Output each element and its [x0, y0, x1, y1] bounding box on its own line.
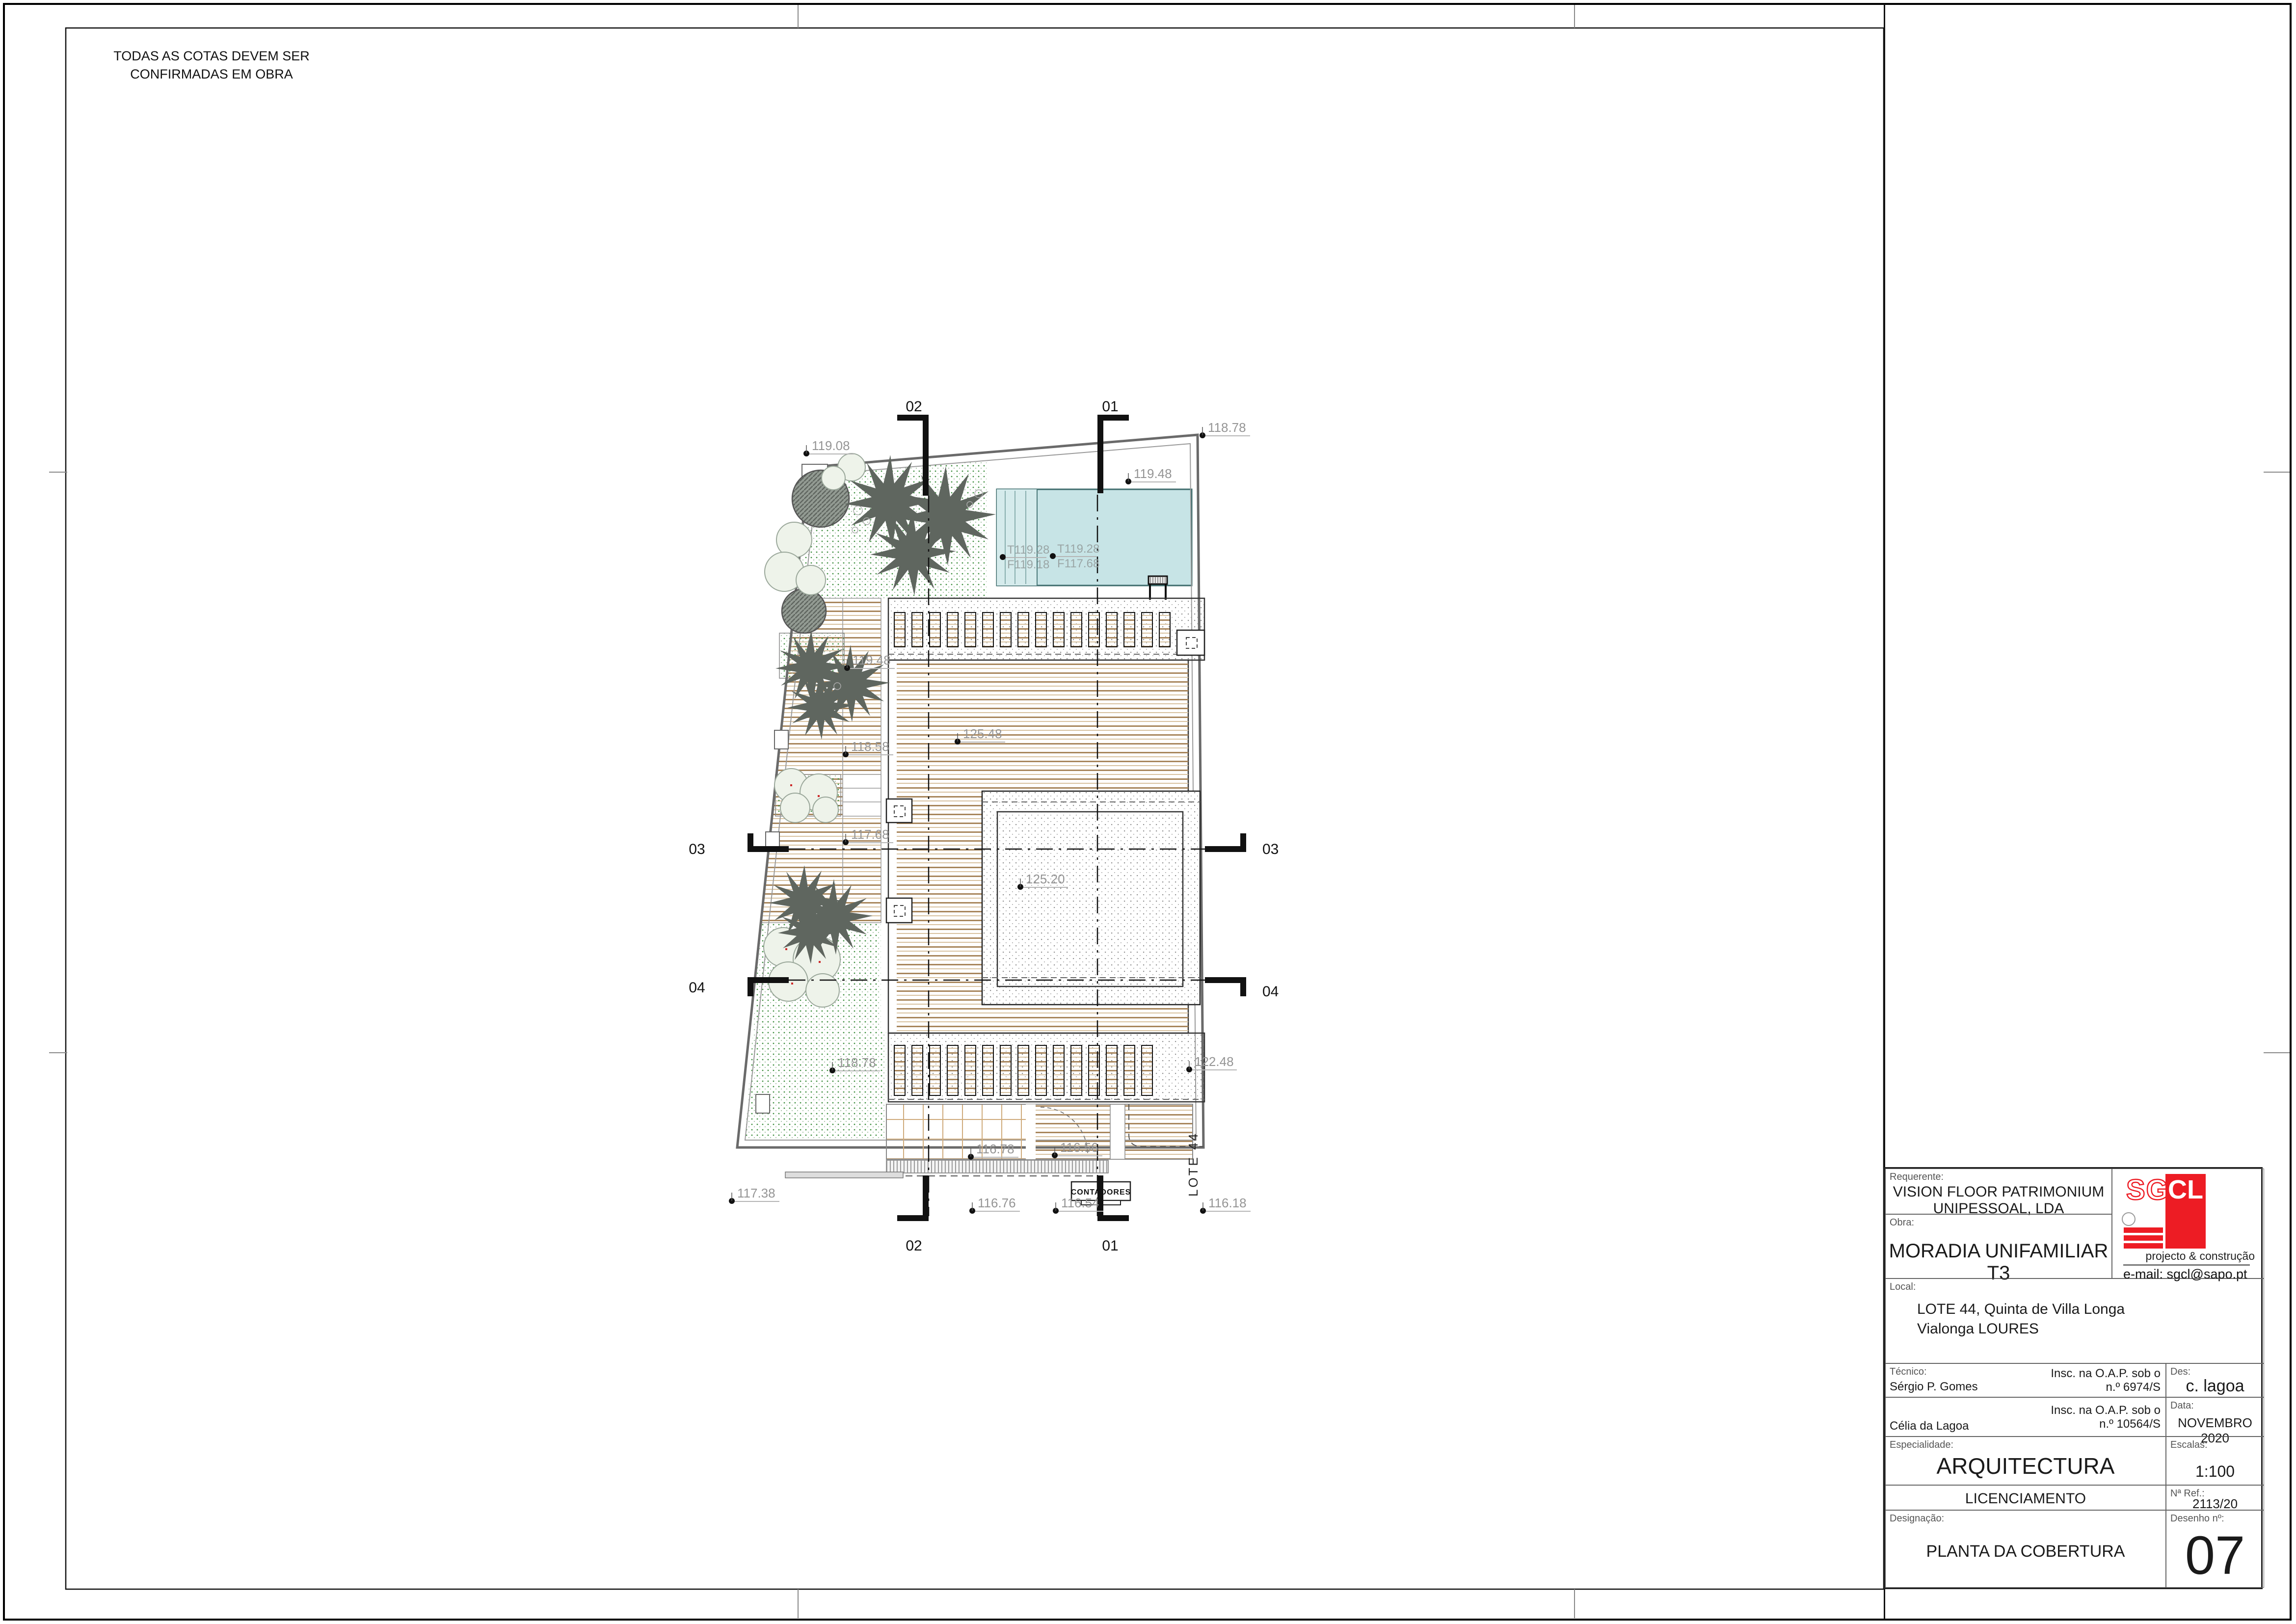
level-annotation: 116.18: [1200, 1196, 1251, 1214]
logo-tagline: projecto & construção: [2146, 1250, 2255, 1263]
level-annotation: 116.54: [1053, 1196, 1103, 1214]
tecnico1-name: Sérgio P. Gomes: [1890, 1380, 1978, 1394]
obra-value: MORADIA UNIFAMILIAR T3: [1886, 1240, 2111, 1284]
desenho-label: Desenho nº:: [2170, 1513, 2224, 1524]
designacao-label: Designação:: [1890, 1513, 1944, 1524]
svg-text:119.48: 119.48: [853, 653, 891, 667]
svg-text:117.38: 117.38: [737, 1186, 775, 1200]
svg-text:F119.18: F119.18: [1007, 558, 1049, 571]
svg-text:117.68: 117.68: [851, 827, 889, 842]
svg-text:SG: SG: [2126, 1174, 2169, 1206]
obra-label: Obra:: [1890, 1217, 1914, 1228]
lot-label: LOTE 44: [1186, 1132, 1201, 1197]
svg-text:125.48: 125.48: [963, 726, 1002, 741]
company-logo: SG CL projecto & construção e-mail: sgcl…: [2112, 1169, 2264, 1278]
roof-vent: [886, 799, 912, 823]
pergola-bottom-slats: [894, 1045, 1152, 1095]
escalas-value: 1:100: [2166, 1463, 2264, 1481]
escalas-label: Escalas:: [2170, 1439, 2208, 1451]
svg-text:122.48: 122.48: [1195, 1054, 1234, 1069]
titleblock-fase: LICENCIAMENTO: [1885, 1485, 2166, 1510]
titleblock-requerente: Requerente: VISION FLOOR PATRIMONIUM UNI…: [1885, 1169, 2112, 1214]
svg-text:118.78: 118.78: [838, 1055, 876, 1070]
designacao-value: PLANTA DA COBERTURA: [1886, 1542, 2165, 1561]
section-flag-01-top: [1100, 418, 1129, 493]
svg-text:F117.68: F117.68: [1057, 557, 1099, 570]
level-annotation: 119.08: [803, 438, 854, 456]
house-roof: [886, 598, 1204, 1102]
titleblock-obra: Obra: MORADIA UNIFAMILIAR T3: [1885, 1214, 2112, 1278]
steps: [843, 774, 881, 816]
section-flag-04-right: [1205, 980, 1243, 996]
tecnico2-insc: Insc. na O.A.P. sob o n.º 10564/S: [2051, 1404, 2161, 1431]
title-block: Requerente: VISION FLOOR PATRIMONIUM UNI…: [1884, 1167, 2263, 1589]
pool-ladder-icon: [1148, 576, 1167, 600]
svg-text:116.56: 116.56: [1060, 1140, 1098, 1155]
tecnico2-name: Célia da Lagoa: [1890, 1419, 1969, 1433]
des-value: c. lagoa: [2166, 1377, 2264, 1396]
section-label: 02: [906, 1238, 922, 1254]
wall-post: [774, 730, 788, 749]
logo-rule: [2123, 1264, 2250, 1266]
section-label: 02: [906, 399, 922, 415]
svg-text:116.78: 116.78: [976, 1142, 1015, 1156]
level-annotation: 116.76: [969, 1196, 1020, 1214]
svg-text:119.48: 119.48: [1134, 466, 1172, 481]
section-label: 04: [689, 980, 705, 996]
requerente-label: Requerente:: [1890, 1171, 1944, 1183]
titleblock-ref: Nª Ref.: 2113/20: [2166, 1485, 2264, 1510]
ref-value: 2113/20: [2166, 1496, 2264, 1512]
titleblock-local: Local: LOTE 44, Quinta de Villa Longa Vi…: [1885, 1278, 2264, 1363]
section-flag-02-bottom: [897, 1175, 926, 1218]
local-value: LOTE 44, Quinta de Villa Longa Vialonga …: [1917, 1300, 2125, 1339]
requerente-value: VISION FLOOR PATRIMONIUM UNIPESSOAL, LDA: [1886, 1184, 2111, 1217]
svg-text:125.20: 125.20: [1026, 872, 1065, 886]
skylight-roof: [982, 791, 1200, 1005]
titleblock-des: Des: c. lagoa: [2166, 1363, 2264, 1397]
svg-text:116.18: 116.18: [1208, 1196, 1247, 1210]
svg-text:T119.28: T119.28: [1007, 543, 1049, 557]
svg-text:118.58: 118.58: [851, 739, 889, 754]
svg-text:CL: CL: [2168, 1175, 2203, 1204]
titleblock-tecnico2: Célia da Lagoa Insc. na O.A.P. sob o n.º…: [1885, 1397, 2166, 1437]
section-label: 01: [1102, 399, 1118, 415]
tree-icon: [782, 589, 826, 633]
local-label: Local:: [1890, 1281, 1916, 1293]
titleblock-escalas: Escalas: 1:100: [2166, 1437, 2264, 1485]
titleblock-especialidade: Especialidade: ARQUITECTURA: [1885, 1437, 2166, 1485]
especialidade-label: Especialidade:: [1890, 1439, 1953, 1451]
pool-level-annotation: T119.28 F119.18: [1000, 543, 1049, 571]
roof-vent: [886, 898, 912, 923]
titleblock-tecnico1: Técnico: Sérgio P. Gomes Insc. na O.A.P.…: [1885, 1363, 2166, 1397]
pool-level-annotation: T119.28 F117.68: [1050, 542, 1099, 570]
level-annotation: 117.38: [729, 1186, 779, 1204]
wall-post: [756, 1094, 770, 1113]
drawing-sheet: TODAS AS COTAS DEVEM SER CONFIRMADAS EM …: [0, 0, 2296, 1624]
svg-text:116.54: 116.54: [1061, 1196, 1099, 1210]
fase-value: LICENCIAMENTO: [1886, 1491, 2165, 1507]
svg-text:119.08: 119.08: [812, 438, 850, 453]
svg-text:118.78: 118.78: [1208, 420, 1246, 435]
des-label: Des:: [2170, 1366, 2190, 1378]
tecnico1-insc: Insc. na O.A.P. sob o n.º 6974/S: [2051, 1367, 2161, 1394]
svg-text:116.76: 116.76: [978, 1196, 1016, 1210]
desenho-value: 07: [2166, 1524, 2264, 1587]
section-label: 04: [1262, 984, 1279, 1000]
especialidade-value: ARQUITECTURA: [1886, 1453, 2165, 1479]
sgcl-logo-icon: SG CL: [2112, 1169, 2264, 1249]
data-label: Data:: [2170, 1400, 2194, 1411]
svg-text:T119.28: T119.28: [1057, 542, 1099, 556]
section-label: 03: [689, 841, 705, 857]
level-annotation: 118.78: [1200, 420, 1250, 438]
sidewalk-band: [785, 1172, 903, 1178]
section-label: 01: [1102, 1238, 1118, 1254]
titleblock-data: Data: NOVEMBRO 2020: [2166, 1397, 2264, 1437]
roof-vent: [1177, 630, 1204, 655]
titleblock-designacao: Designação: PLANTA DA COBERTURA: [1885, 1510, 2166, 1588]
tecnico-label: Técnico:: [1890, 1366, 1927, 1378]
level-annotation: 119.48: [1125, 466, 1176, 484]
section-label: 03: [1262, 841, 1279, 857]
titleblock-desenho: Desenho nº: 07: [2166, 1510, 2264, 1588]
section-flag-03-right: [1205, 833, 1243, 849]
